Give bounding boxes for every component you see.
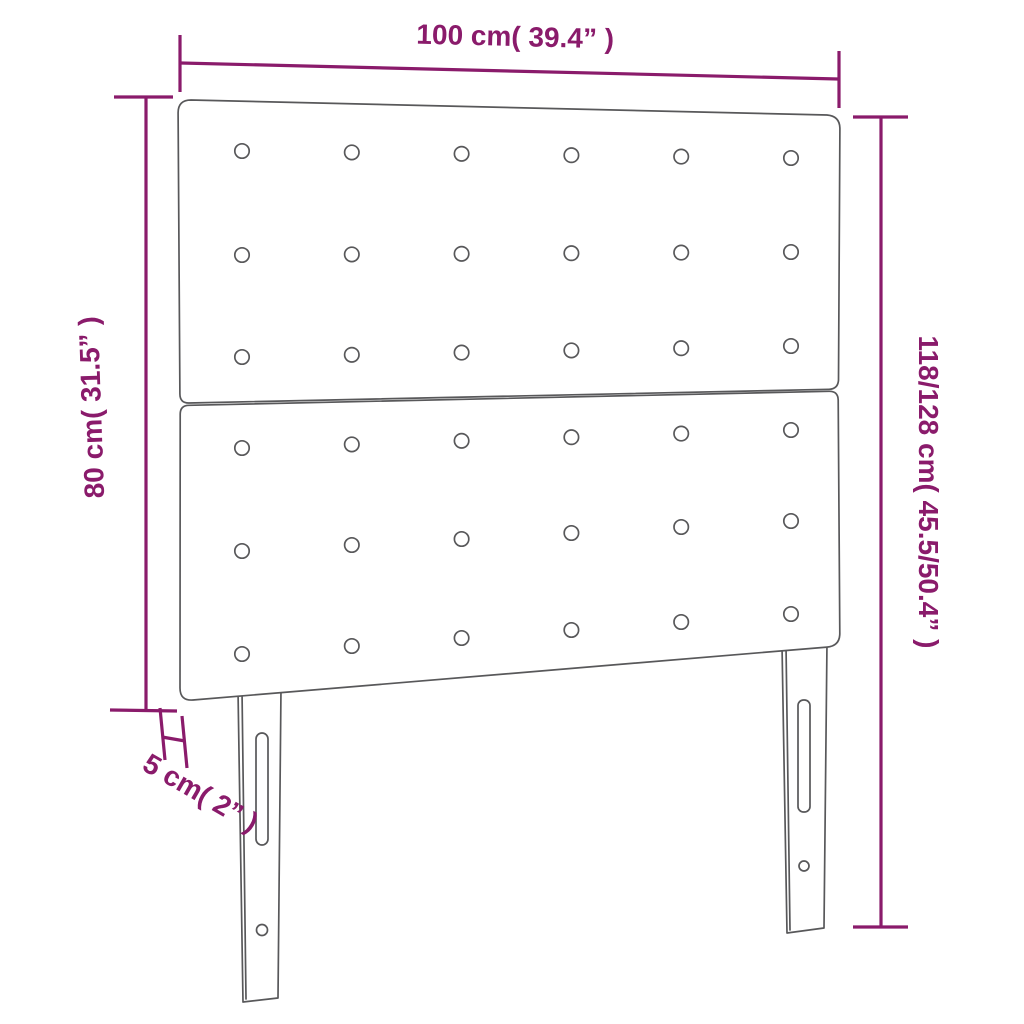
right-leg-slot [798,700,810,812]
left-dimension-bottom-tick [110,710,177,711]
left-leg-slot [256,733,268,845]
headboard-upper-panel [178,100,840,403]
left-leg-hole [257,925,268,936]
thickness-dimension-label: 5 cm( 2” ) [138,747,264,838]
dimension-thickness: 5 cm( 2” ) [138,708,264,838]
thickness-crossbar [162,737,185,741]
headboard-right-leg [782,642,827,933]
diagram-canvas: 100 cm( 39.4” ) 80 cm( 31.5” ) 118/128 c… [0,0,1024,1024]
dimension-height-left: 80 cm( 31.5” ) [73,97,177,711]
width-dimension-label: 100 cm( 39.4” ) [416,19,614,55]
dimension-diagram: 100 cm( 39.4” ) 80 cm( 31.5” ) 118/128 c… [0,0,1024,1024]
headboard-lower-panel [180,391,840,700]
dimension-height-right: 118/128 cm( 45.5/50.4” ) [853,117,944,927]
headboard-drawing [178,100,840,1002]
width-dimension-line [181,63,838,79]
right-dimension-label: 118/128 cm( 45.5/50.4” ) [913,336,944,649]
dimension-width: 100 cm( 39.4” ) [180,19,839,108]
left-dimension-label: 80 cm( 31.5” ) [73,316,110,499]
headboard-left-leg [238,688,281,1002]
right-leg-hole [799,861,809,871]
